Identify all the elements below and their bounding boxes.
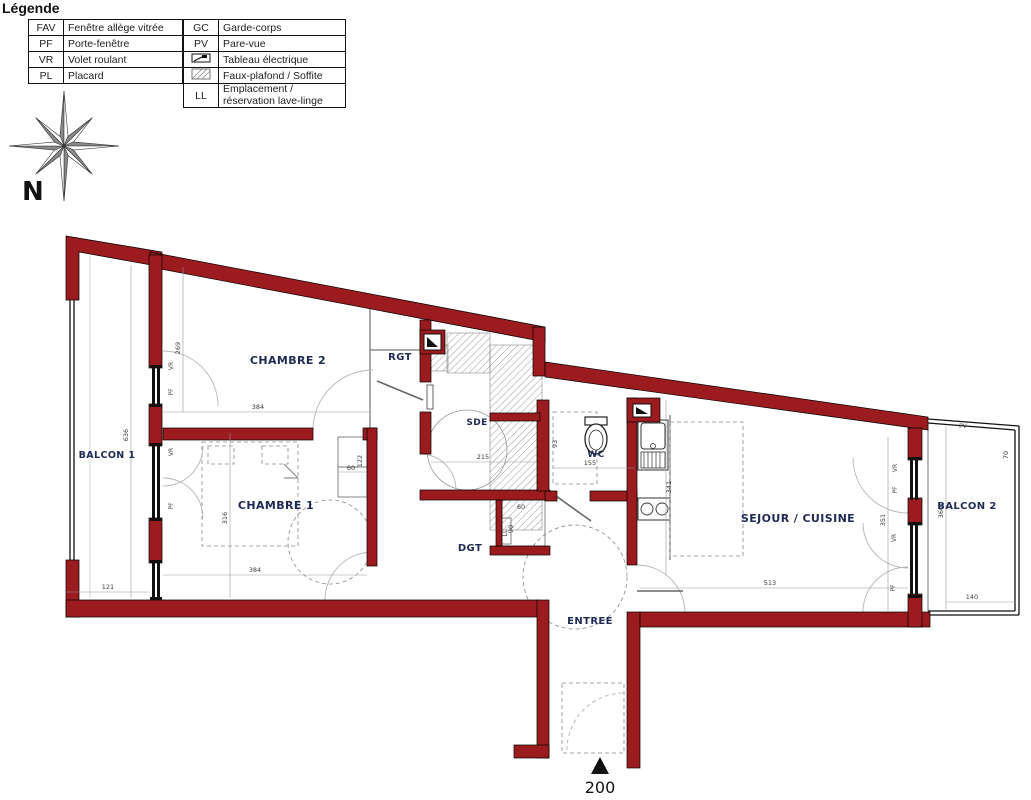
door-arc [313, 370, 373, 430]
sink-unit [638, 420, 668, 470]
window-cap [150, 404, 162, 407]
door-arc [325, 552, 373, 600]
railing [928, 419, 1019, 426]
window-bar [152, 563, 155, 598]
dim-text: 384 [249, 566, 261, 574]
dim-text: 155 [584, 459, 596, 467]
wall-segment [908, 594, 922, 627]
dim-text: 384 [252, 403, 264, 411]
room-label-chambre1: CHAMBRE 1 [238, 499, 314, 512]
window-bar [915, 460, 918, 500]
wall-segment [496, 500, 502, 546]
window-label: PF [168, 502, 175, 510]
compass-ray [36, 146, 64, 174]
entrance-mark-text: 200 [585, 778, 616, 797]
window-label: PF [890, 584, 897, 592]
dim-text: 341 [665, 481, 673, 493]
dim-text: 636 [122, 429, 130, 441]
room-label-rgt: RGT [388, 352, 412, 363]
dim-text: 60 [347, 464, 355, 472]
room-label-balcon1: BALCON 1 [79, 450, 136, 461]
dim-text: 70 [1002, 451, 1010, 459]
window-label: VR [168, 362, 175, 370]
wall-segment [149, 404, 162, 446]
compass-ray [64, 146, 68, 201]
pillow [262, 446, 288, 464]
wall-segment [149, 518, 162, 563]
room-label-dgt: DGT [458, 543, 482, 554]
wall-segment [163, 428, 313, 440]
door-arc [863, 567, 908, 612]
dim-text: 140 [966, 593, 978, 601]
dim-text: 60 [517, 503, 525, 511]
wall-segment [533, 327, 545, 376]
wall-segment [150, 252, 545, 342]
wall-segment [66, 600, 538, 617]
window-cap [150, 518, 162, 521]
door-leaf [377, 381, 423, 400]
wall-segment [545, 491, 557, 501]
wall-segment [490, 546, 550, 555]
blanket-fold [284, 464, 298, 478]
room-label-balcon2: BALCON 2 [937, 501, 997, 512]
window-label: VR [891, 534, 898, 542]
window-labels: VR PF VR PF VR PF VR PF PV [168, 362, 968, 592]
wall-segment [640, 612, 930, 627]
window-cap [150, 365, 162, 368]
front-door-arc [567, 693, 624, 750]
wall-segment [627, 398, 637, 565]
compass-ray [36, 118, 64, 146]
door-arc [637, 565, 685, 613]
door-arc [163, 478, 203, 518]
wall-segment [420, 490, 550, 500]
dim-text: 93 [551, 440, 559, 448]
room-label-wc: WC [587, 450, 604, 460]
window-bar [915, 525, 918, 597]
window-label: PV [959, 423, 968, 430]
wall-segment [367, 428, 377, 566]
window-bar [910, 460, 913, 500]
window-bar [157, 563, 160, 598]
door-leaf [556, 496, 591, 521]
dim-text: 121 [102, 583, 114, 591]
wall-segment [514, 745, 549, 758]
wall-segment [66, 236, 162, 300]
window-cap [150, 560, 162, 563]
window-bar [157, 446, 160, 518]
dim-text: 215 [477, 453, 489, 461]
dim-text: 269 [174, 342, 182, 354]
dimension-texts: 384 384 636 121 269 316 215 155 93 60 12… [102, 342, 1010, 601]
room-label-sde: SDE [466, 418, 487, 428]
compass-ray [64, 142, 119, 146]
entrance-arrow-icon [591, 757, 609, 774]
wall-segment [908, 428, 922, 460]
turning-circles [288, 410, 627, 629]
window-label: VR [892, 464, 899, 472]
wall-segment [627, 612, 640, 768]
window-bar [157, 368, 160, 404]
cooktop-icon [638, 498, 670, 520]
window-cap [908, 522, 922, 525]
window-label: VR [168, 448, 175, 456]
window-label: PF [168, 388, 175, 396]
door-arc [853, 458, 908, 513]
dim-text: 513 [764, 579, 776, 587]
bed [202, 442, 298, 546]
room-label-entree: ENTREE [567, 616, 613, 627]
compass-ray [64, 118, 92, 146]
window-bar [152, 368, 155, 404]
compass-ray [64, 146, 92, 174]
window-cap [908, 595, 922, 598]
wall-segment [908, 498, 922, 525]
wall-segment [420, 412, 431, 454]
kitchen-appliance-zone [670, 422, 743, 556]
walls [66, 236, 930, 768]
wall-segment [149, 255, 162, 368]
door-arc [163, 351, 218, 406]
window-cap [908, 457, 922, 460]
wall-segment [490, 413, 540, 421]
entrance-marker: 200 [585, 757, 616, 797]
radiator [427, 385, 433, 409]
dim-text: 316 [221, 512, 229, 524]
compass-ray [9, 146, 64, 150]
wall-segment [537, 600, 549, 758]
soffit-hatch [447, 333, 490, 373]
window-label: PF [892, 486, 899, 494]
room-label-sejour: SEJOUR / CUISINE [741, 512, 855, 525]
ll-text: LL [501, 529, 509, 537]
door-arc [863, 523, 908, 568]
room-label-chambre2: CHAMBRE 2 [250, 354, 326, 367]
door-arc [420, 454, 456, 490]
window-cap [150, 597, 162, 600]
soffit-areas [428, 333, 542, 530]
dim-text: 351 [879, 514, 887, 526]
window-bar [152, 446, 155, 518]
window-cap [150, 443, 162, 446]
window-bar [910, 525, 913, 597]
compass-north-label: N [22, 177, 44, 207]
dim-text: 122 [356, 455, 364, 467]
turning-circle [288, 500, 372, 584]
floor-plan: N [0, 0, 1031, 800]
